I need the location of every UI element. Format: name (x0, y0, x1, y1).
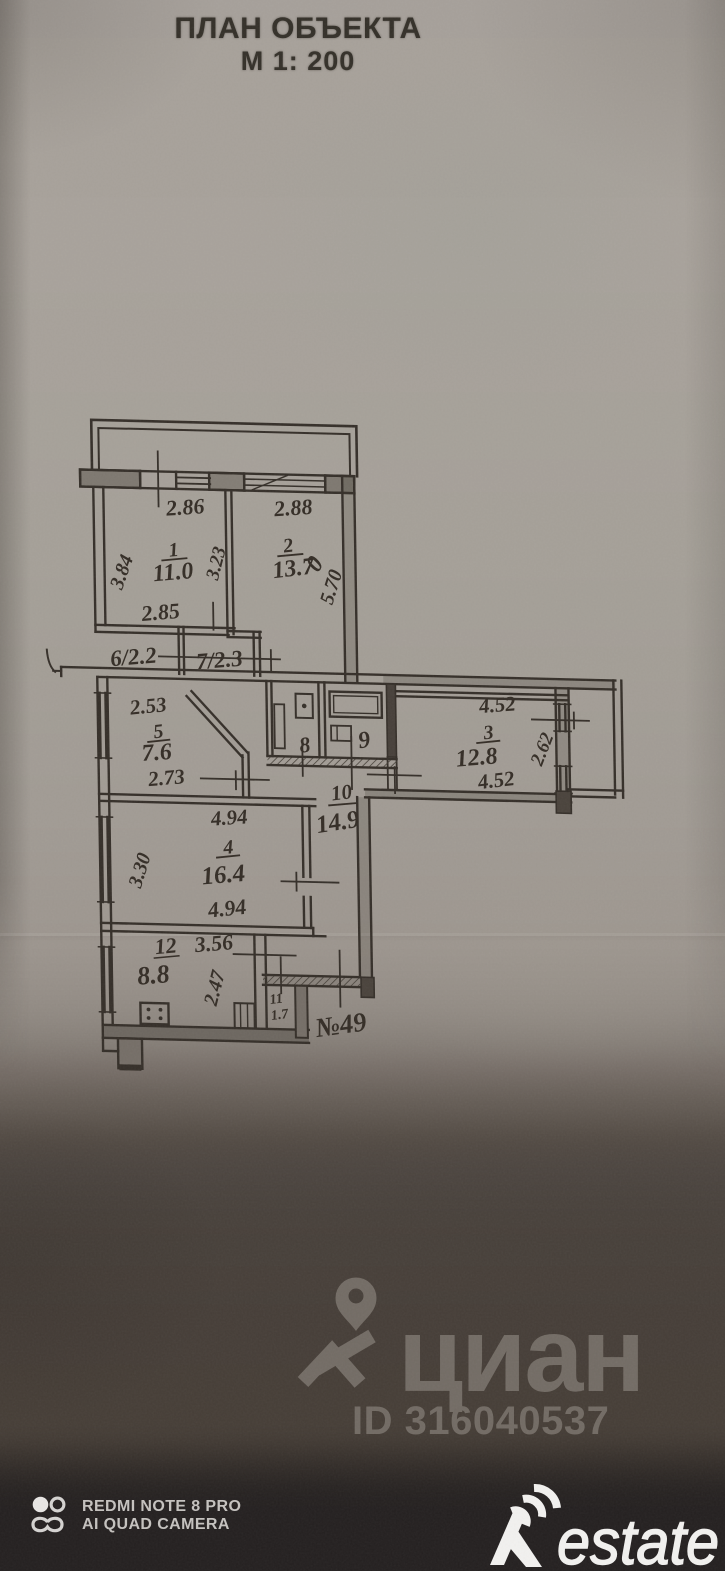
svg-text:11.0: 11.0 (151, 558, 195, 587)
svg-text:7/2.3: 7/2.3 (195, 646, 244, 675)
svg-text:2.62: 2.62 (526, 729, 558, 769)
svg-text:2.73: 2.73 (146, 764, 186, 791)
svg-text:4.94: 4.94 (209, 804, 249, 830)
svg-text:3.30: 3.30 (124, 850, 156, 891)
svg-text:1.7: 1.7 (270, 1007, 291, 1024)
svg-text:9: 9 (356, 727, 372, 754)
svg-text:4.52: 4.52 (477, 691, 518, 718)
svg-text:16.4: 16.4 (200, 860, 247, 890)
svg-text:4.52: 4.52 (475, 766, 517, 794)
svg-text:2.85: 2.85 (139, 598, 181, 626)
svg-text:2.47: 2.47 (200, 967, 230, 1009)
svg-text:14.9: 14.9 (314, 806, 363, 839)
svg-text:AI QUAD CAMERA: AI QUAD CAMERA (82, 1516, 230, 1533)
svg-text:12: 12 (153, 932, 178, 959)
svg-text:3.84: 3.84 (105, 552, 138, 594)
svg-text:estate: estate (557, 1507, 719, 1571)
svg-text:2.53: 2.53 (127, 692, 168, 720)
svg-text:ID 316040537: ID 316040537 (352, 1399, 609, 1443)
svg-text:циан: циан (398, 1296, 643, 1414)
svg-text:7.6: 7.6 (141, 739, 174, 767)
svg-text:8.8: 8.8 (135, 959, 171, 991)
svg-text:6/2.2: 6/2.2 (109, 643, 158, 672)
svg-text:4.94: 4.94 (205, 894, 248, 923)
svg-text:10: 10 (329, 779, 354, 805)
svg-text:11: 11 (269, 992, 284, 1008)
svg-text:3.56: 3.56 (192, 929, 234, 957)
svg-text:8: 8 (297, 732, 312, 758)
svg-text:REDMI NOTE 8 PRO: REDMI NOTE 8 PRO (82, 1498, 241, 1515)
svg-text:№49: №49 (312, 1006, 370, 1043)
svg-text:2.86: 2.86 (164, 493, 206, 520)
svg-text:2.88: 2.88 (272, 494, 314, 521)
